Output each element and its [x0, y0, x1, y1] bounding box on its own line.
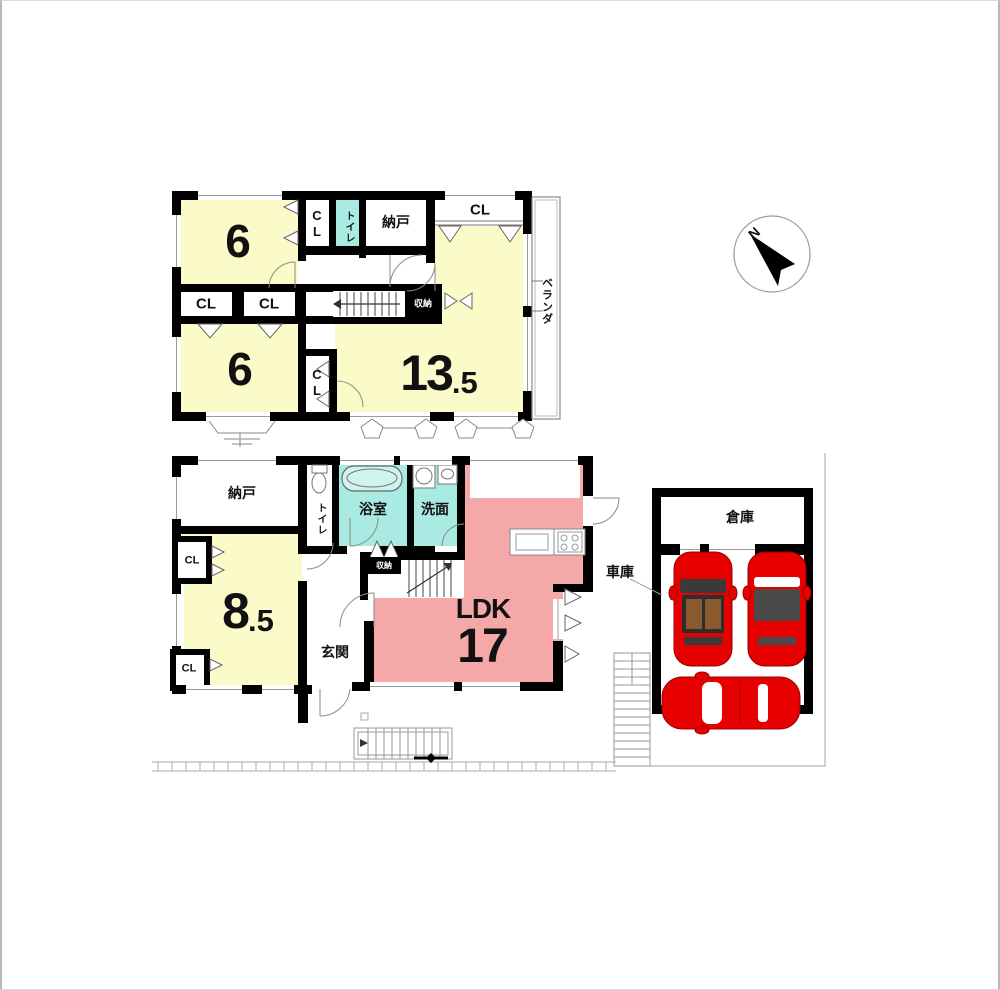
f1-bathtub: [342, 466, 402, 491]
f2-room6-top-label: 6: [225, 218, 251, 264]
f1-ldk-size-label: 17: [457, 623, 506, 671]
f1-wash-label: 洗面: [421, 502, 449, 516]
f1-room85-label: 8.5: [222, 586, 274, 636]
f2-room135-label: 13.5: [400, 348, 477, 398]
f1-toilet-label: トイレ: [315, 503, 325, 536]
car-icon-3: [662, 672, 800, 734]
f2-bay-window-symbols: [209, 419, 534, 447]
f2-cl-mid-left-1-label: CL: [196, 297, 216, 312]
floor-plan-canvas: 6 CL トイレ 納戸 CL CL CL 収納 6 CL 13.5 ベランダ N…: [0, 0, 1000, 990]
floor-plan-drawing: [2, 1, 1000, 990]
f2-nando-label: 納戸: [382, 215, 410, 229]
f1-stairs-icon: [403, 560, 459, 598]
f1-kitchen-cabinet: [470, 465, 580, 498]
garage-plan: [630, 488, 813, 734]
car-icon-2: [743, 552, 811, 666]
f2-shuno-label: 収納: [414, 300, 432, 309]
f1-bath-label: 浴室: [359, 502, 387, 516]
f2-veranda-label: ベランダ: [541, 277, 552, 325]
f2-room6-bottom-label: 6: [227, 346, 253, 392]
f2-cl-bottom-vertical-label: CL: [311, 367, 324, 399]
car-icon-1: [669, 552, 737, 666]
compass: [734, 216, 810, 292]
f2-cl-top-vertical-label: CL: [311, 208, 324, 240]
f1-cl-bottom-label: CL: [182, 664, 197, 675]
garage-label: 車庫: [606, 565, 634, 579]
f1-shuno-label: 収納: [376, 562, 392, 570]
f2-toilet-label: トイレ: [343, 211, 353, 244]
f1-nando-label: 納戸: [228, 486, 256, 500]
side-steps: [614, 653, 650, 766]
f2-stairs-icon: [333, 291, 405, 317]
f1-genkan-label: 玄関: [321, 645, 349, 659]
f2-cl-mid-left-2-label: CL: [259, 297, 279, 312]
entrance-steps: [354, 728, 452, 759]
fence-line: [152, 762, 616, 771]
f1-cl-top-label: CL: [185, 556, 200, 567]
f1-kitchen-counter: [510, 529, 585, 555]
f1-ldk-label: LDK: [456, 595, 511, 623]
f2-cl-top-right-label: CL: [470, 203, 490, 218]
garage-warehouse-label: 倉庫: [726, 510, 754, 524]
f1-toilet-fixture: [312, 465, 327, 493]
